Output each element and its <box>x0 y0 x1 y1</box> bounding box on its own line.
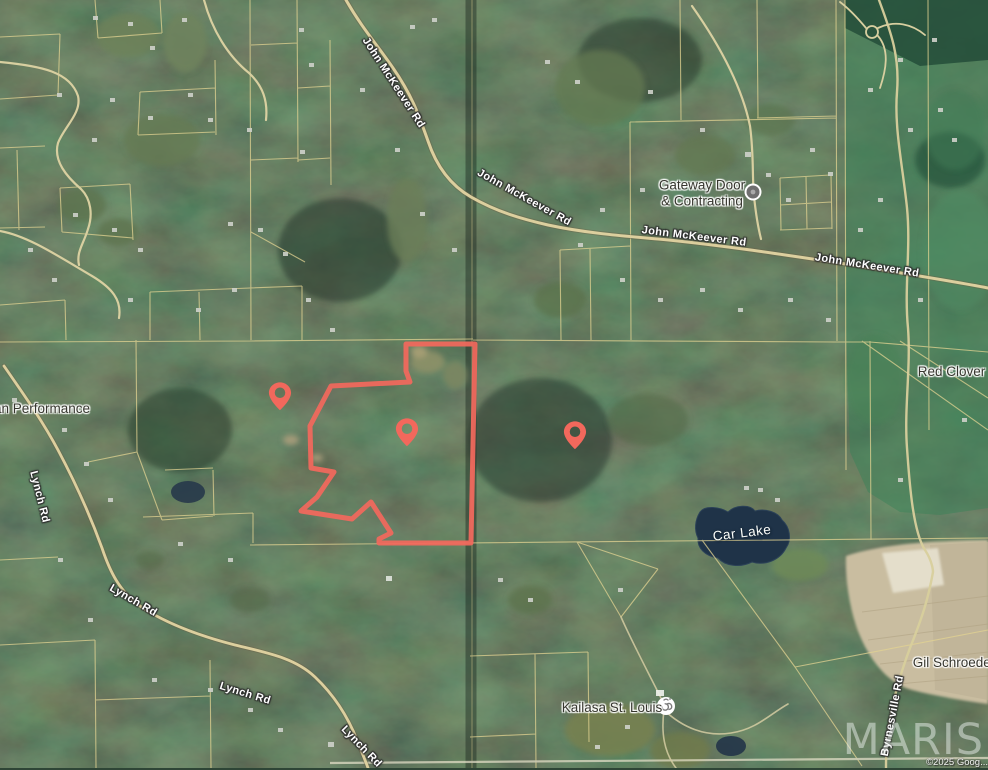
forest-tint <box>0 0 988 768</box>
satellite-imagery[interactable] <box>0 0 988 768</box>
kailasa-temple-poi-icon[interactable] <box>657 697 675 715</box>
gateway-door-poi-icon[interactable] <box>745 184 762 201</box>
satellite-map-screenshot: { "map": { "watermark": "MARIS", "attrib… <box>0 0 988 768</box>
